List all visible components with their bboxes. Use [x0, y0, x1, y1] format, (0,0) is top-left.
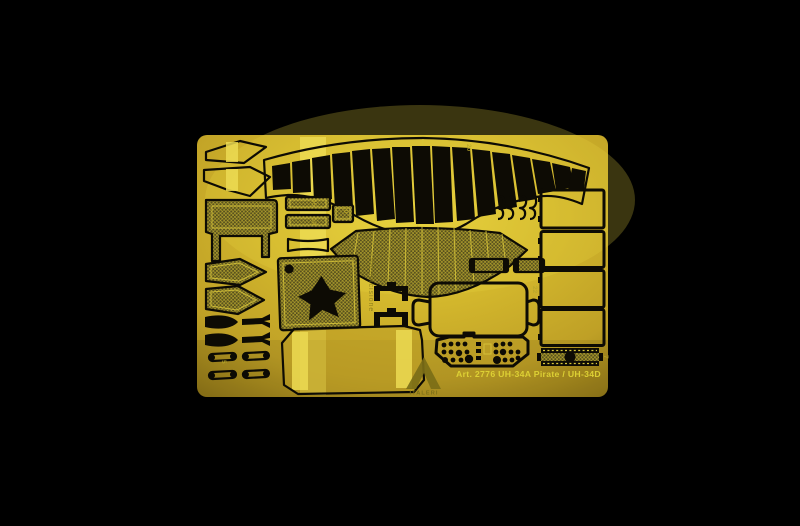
part-mesh-tread-strip-1 [470, 259, 508, 272]
part-mesh-tread-strip-2 [514, 259, 544, 272]
part-mesh-strip-with-hub [537, 348, 603, 366]
part-number: 20 [465, 144, 472, 152]
part-number: 14 [310, 218, 317, 226]
part-mesh-floor-plate [278, 256, 360, 331]
part-number: 22 [531, 286, 538, 294]
part-number: 45 [310, 199, 317, 207]
part-large-floor-panel [282, 326, 424, 394]
part-number: 7 [602, 355, 609, 359]
product-label: Art. 2776 UH-34A Pirate / UH-34D [456, 369, 601, 379]
photo-etch-fret-photo: ITALERI Art. 2776 UH-34A Pirate / UH-34D… [0, 0, 800, 526]
vertical-etched-text: Fotoincisione [367, 258, 374, 312]
part-number: 10 [342, 206, 349, 214]
part-number: 1 [350, 262, 357, 266]
part-number: 5 [220, 360, 227, 364]
part-instrument-panel [436, 333, 528, 366]
product-photo: ITALERI Art. 2776 UH-34A Pirate / UH-34D… [0, 0, 800, 526]
brand-text: ITALERI [409, 391, 438, 397]
part-mesh-step-strip-1 [286, 197, 330, 210]
part-mesh-step-strip-2 [286, 215, 330, 228]
